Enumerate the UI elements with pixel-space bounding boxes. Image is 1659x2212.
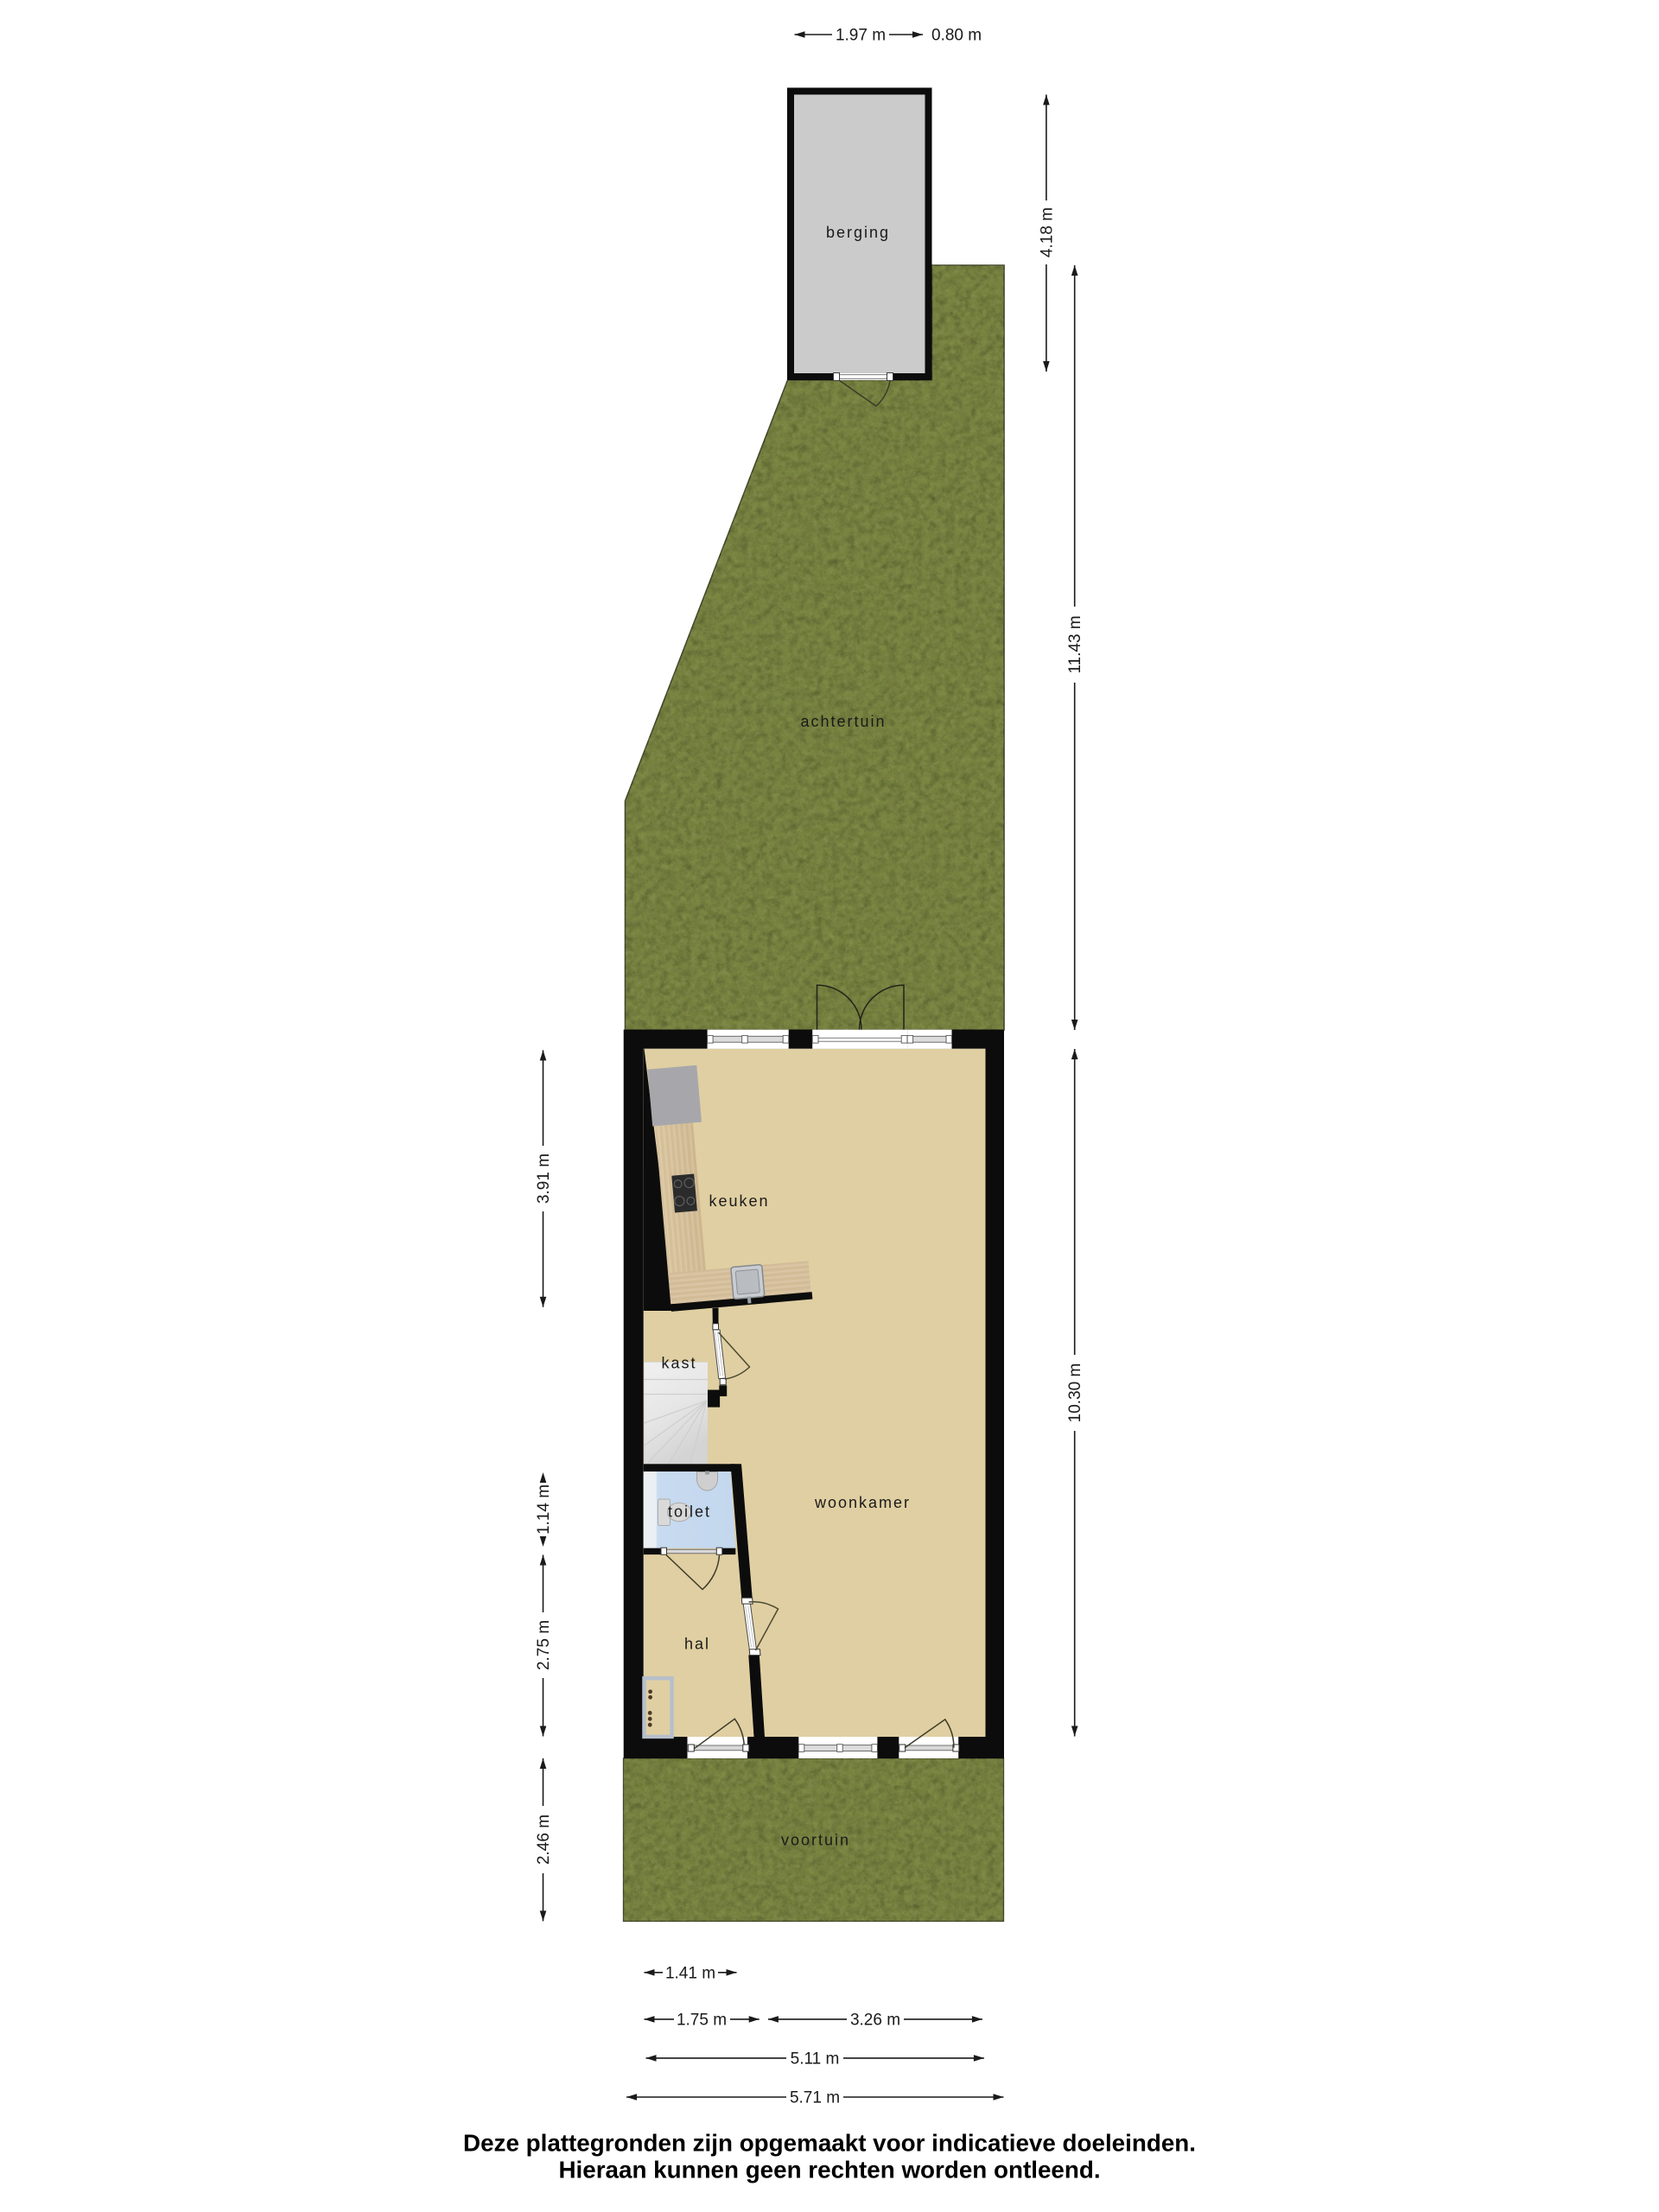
svg-text:1.97 m: 1.97 m — [836, 27, 886, 45]
svg-text:4.18 m: 4.18 m — [1038, 207, 1056, 257]
svg-text:keuken: keuken — [709, 1192, 769, 1210]
svg-text:woonkamer: woonkamer — [814, 1494, 911, 1511]
svg-text:Hieraan kunnen geen rechten wo: Hieraan kunnen geen rechten worden ontle… — [558, 2156, 1100, 2183]
svg-text:3.91 m: 3.91 m — [535, 1154, 553, 1204]
svg-text:2.75 m: 2.75 m — [535, 1620, 553, 1670]
svg-text:voortuin: voortuin — [781, 1832, 850, 1849]
svg-text:1.41 m: 1.41 m — [665, 1964, 715, 1982]
svg-text:achtertuin: achtertuin — [800, 713, 886, 730]
svg-text:10.30 m: 10.30 m — [1066, 1363, 1084, 1423]
svg-text:Deze plattegronden zijn opgema: Deze plattegronden zijn opgemaakt voor i… — [463, 2130, 1196, 2157]
svg-text:berging: berging — [826, 224, 890, 241]
svg-text:11.43 m: 11.43 m — [1066, 615, 1084, 673]
svg-text:hal: hal — [684, 1636, 710, 1653]
svg-text:kast: kast — [661, 1355, 696, 1372]
svg-text:0.80 m: 0.80 m — [931, 27, 982, 45]
svg-text:2.46 m: 2.46 m — [535, 1815, 553, 1865]
svg-text:3.26 m: 3.26 m — [850, 2011, 900, 2029]
svg-text:5.11 m: 5.11 m — [791, 2050, 840, 2068]
svg-text:1.14 m: 1.14 m — [535, 1484, 553, 1535]
svg-text:toilet: toilet — [668, 1503, 711, 1521]
svg-text:5.71 m: 5.71 m — [790, 2089, 840, 2107]
svg-text:1.75 m: 1.75 m — [677, 2011, 727, 2029]
